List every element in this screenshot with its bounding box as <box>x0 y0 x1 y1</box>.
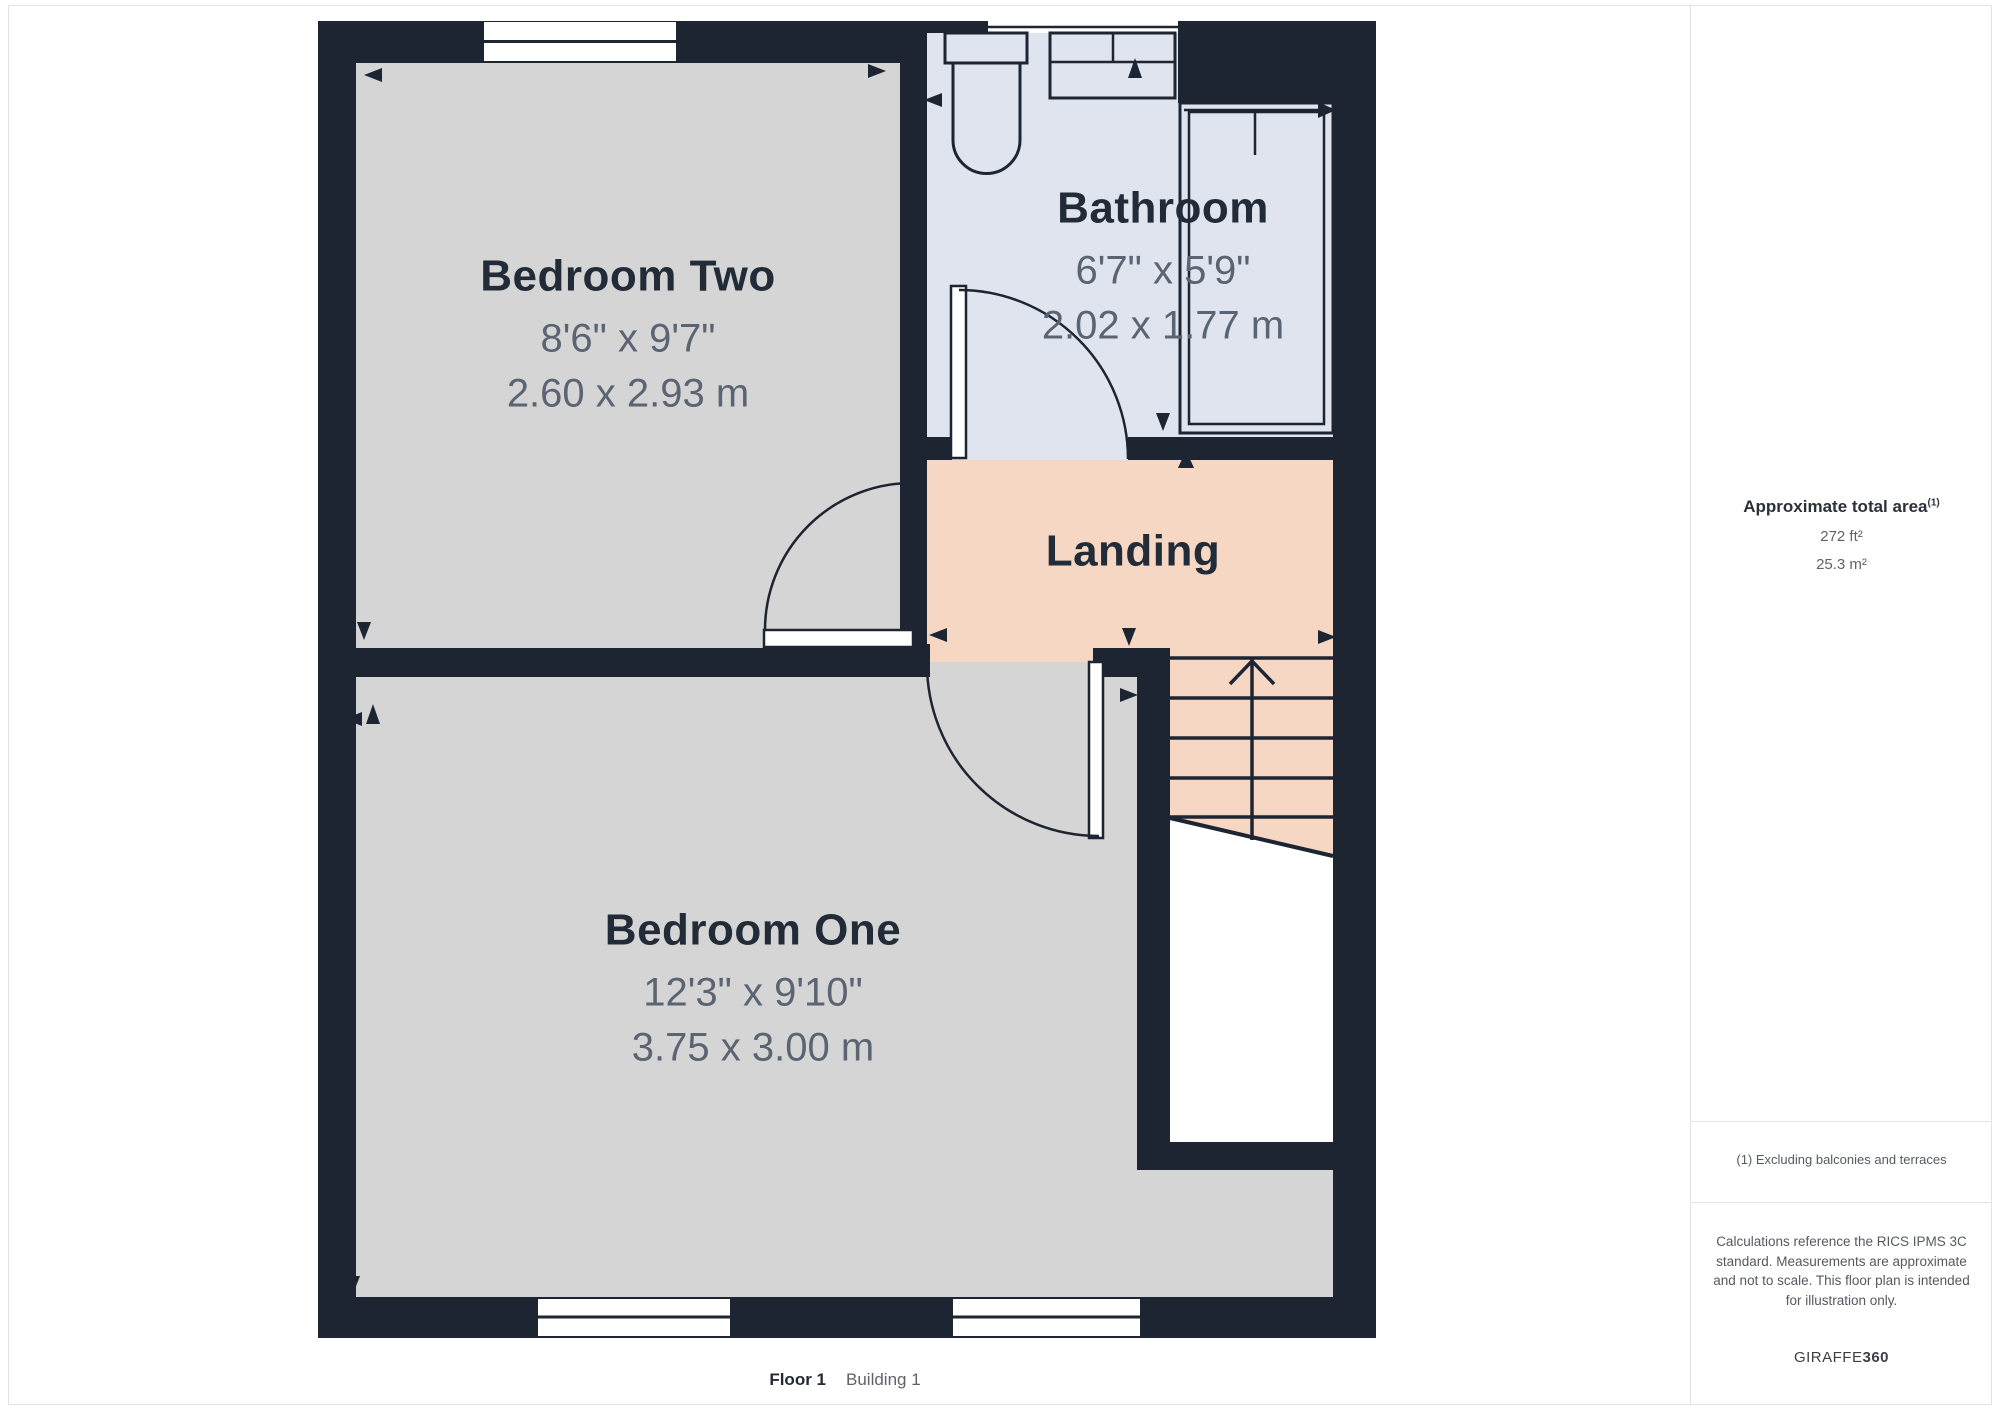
room-name: Landing <box>1046 526 1221 579</box>
bathroom-door-opening <box>952 437 1128 460</box>
room-label-bedroom-two: Bedroom Two 8'6" x 9'7" 2.60 x 2.93 m <box>480 250 776 421</box>
bedroom-two-window <box>484 22 676 61</box>
room-name: Bedroom Two <box>480 250 776 303</box>
room-dim-metric: 2.60 x 2.93 m <box>480 366 776 421</box>
footnote-marker: (1) <box>1928 497 1940 508</box>
room-dim-metric: 2.02 x 1.77 m <box>1042 298 1284 353</box>
room-dim-imperial: 6'7" x 5'9" <box>1042 243 1284 298</box>
sidebar-divider <box>1691 1202 1992 1203</box>
understair-void <box>1170 818 1333 1142</box>
room-dim-imperial: 12'3" x 9'10" <box>605 965 901 1020</box>
total-area-imperial: 272 ft² <box>1691 528 1992 545</box>
brand-name: GIRAFFE <box>1794 1349 1863 1366</box>
total-area-metric: 25.3 m² <box>1691 556 1992 573</box>
sink-icon <box>1050 33 1175 98</box>
bedroom-one-window-right <box>953 1299 1140 1336</box>
bedroom-one-door-opening <box>930 662 1093 677</box>
total-area-block: Approximate total area(1) 272 ft² 25.3 m… <box>1691 497 1992 573</box>
room-dim-metric: 3.75 x 3.00 m <box>605 1020 901 1075</box>
toilet-icon <box>945 33 1027 174</box>
disclaimer-text: Calculations reference the RICS IPMS 3C … <box>1691 1232 1992 1310</box>
room-label-landing: Landing <box>1046 526 1221 579</box>
room-name: Bedroom One <box>605 904 901 957</box>
room-label-bedroom-one: Bedroom One 12'3" x 9'10" 3.75 x 3.00 m <box>605 904 901 1075</box>
room-name: Bathroom <box>1042 182 1284 235</box>
floor-label: Floor 1 <box>769 1370 826 1389</box>
brand-logo: GIRAFFE360 <box>1691 1349 1992 1366</box>
floor-caption: Floor 1Building 1 <box>0 1370 1690 1390</box>
bedroom-one-window-left <box>538 1299 730 1336</box>
info-sidebar: Approximate total area(1) 272 ft² 25.3 m… <box>1690 5 1992 1405</box>
landing-door-opening <box>930 650 1093 662</box>
bedroom-one-floor-understairs <box>1137 1170 1333 1297</box>
sidebar-divider <box>1691 1121 1992 1122</box>
room-dim-imperial: 8'6" x 9'7" <box>480 311 776 366</box>
room-label-bathroom: Bathroom 6'7" x 5'9" 2.02 x 1.77 m <box>1042 182 1284 353</box>
total-area-title: Approximate total area(1) <box>1691 497 1992 517</box>
brand-suffix: 360 <box>1862 1349 1889 1366</box>
building-label: Building 1 <box>846 1370 921 1389</box>
bathroom-window <box>988 21 1178 33</box>
footnote-text: (1) Excluding balconies and terraces <box>1691 1152 1992 1167</box>
